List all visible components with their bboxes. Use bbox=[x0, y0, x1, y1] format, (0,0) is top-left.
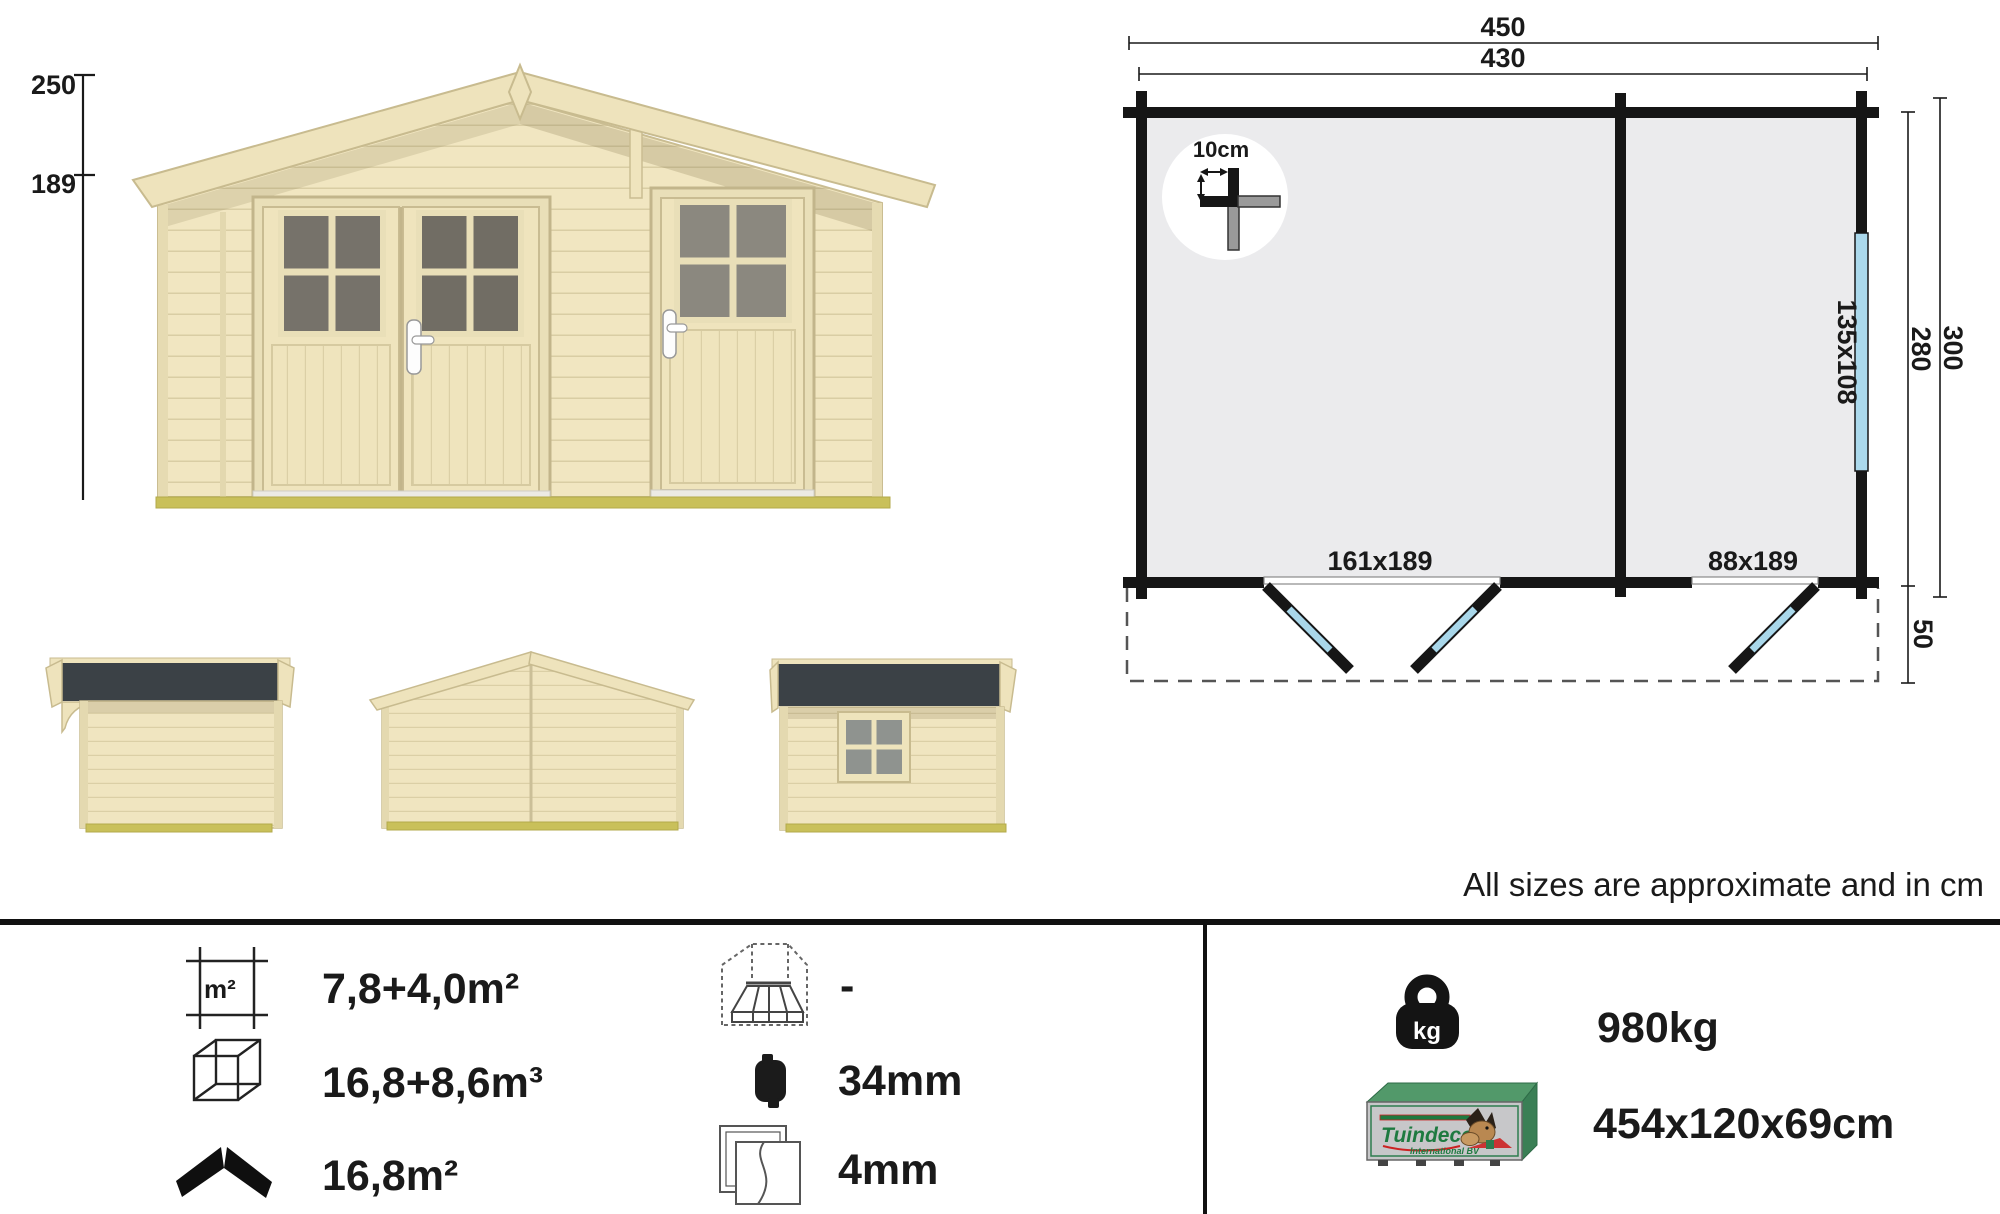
plan-door-swings bbox=[1266, 586, 1816, 670]
floor-area-icon-label: m² bbox=[204, 974, 236, 1004]
side-roof-right bbox=[777, 664, 1002, 706]
rear-view bbox=[370, 652, 694, 830]
spec-divider-line bbox=[1203, 925, 1207, 1214]
volume-cube-icon bbox=[194, 1040, 260, 1100]
brand-subtitle: International BV bbox=[1410, 1146, 1480, 1156]
roof-area-icon bbox=[176, 1147, 272, 1198]
single-door-window bbox=[677, 202, 789, 320]
spec-canopy: - bbox=[722, 944, 854, 1025]
log-detail: 10cm bbox=[1162, 134, 1288, 260]
spec-sheet-canvas: 250 189 bbox=[0, 0, 2000, 1214]
side-view-left bbox=[46, 658, 294, 832]
double-door bbox=[253, 197, 550, 500]
spec-sheet: 250 189 bbox=[0, 0, 2000, 1214]
height-dimension bbox=[74, 75, 95, 500]
plan-wall-width: 430 bbox=[1480, 43, 1525, 73]
roof-area-value: 16,8m² bbox=[322, 1152, 458, 1200]
plan-double-door-size: 161x189 bbox=[1327, 546, 1432, 576]
plan-single-door-size: 88x189 bbox=[1708, 546, 1798, 576]
package-size-value: 454x120x69cm bbox=[1593, 1100, 1894, 1148]
wall-height-label: 189 bbox=[31, 169, 76, 199]
plan-canopy-depth: 50 bbox=[1908, 619, 1938, 649]
weight-icon-label: kg bbox=[1413, 1018, 1441, 1045]
spec-floor-area: m² 7,8+4,0m² bbox=[186, 947, 519, 1029]
tuindeco-logo: Tuindeco International BV bbox=[1380, 1108, 1512, 1156]
package-box: Tuindeco International BV bbox=[1367, 1083, 1537, 1166]
plan-wall-depth: 280 bbox=[1906, 326, 1936, 371]
brand-name: Tuindeco bbox=[1381, 1124, 1474, 1147]
floor-area-value: 7,8+4,0m² bbox=[322, 965, 519, 1013]
plan-total-depth: 300 bbox=[1938, 325, 1968, 370]
foundation-beam bbox=[156, 497, 890, 508]
spec-glazing: 4mm bbox=[720, 1126, 938, 1204]
peak-height-label: 250 bbox=[31, 70, 76, 100]
door-window-right bbox=[419, 213, 521, 334]
floor-plan: 10cm 450 430 300 280 50 135x108 161x189 … bbox=[1123, 12, 1968, 683]
canopy-value: - bbox=[840, 962, 854, 1010]
spec-wall-thickness: 34mm bbox=[755, 1054, 962, 1108]
plan-window-size: 135x108 bbox=[1832, 299, 1862, 404]
canopy-icon bbox=[722, 944, 807, 1025]
plan-total-width: 450 bbox=[1480, 12, 1525, 42]
glass-pane-icon bbox=[720, 1126, 800, 1204]
front-elevation-view: 250 189 bbox=[31, 65, 935, 508]
single-door bbox=[651, 188, 814, 497]
door-window-left bbox=[281, 213, 383, 334]
log-detail-label: 10cm bbox=[1193, 137, 1249, 162]
weight-value: 980kg bbox=[1597, 1004, 1719, 1052]
sizes-note: All sizes are approximate and in cm bbox=[1463, 866, 1984, 903]
glazing-value: 4mm bbox=[838, 1146, 938, 1194]
spec-volume: 16,8+8,6m³ bbox=[194, 1040, 543, 1107]
weight-kettlebell-icon: kg bbox=[1396, 981, 1459, 1049]
spec-roof-area: 16,8m² bbox=[176, 1147, 458, 1200]
side-window bbox=[838, 712, 910, 782]
volume-value: 16,8+8,6m³ bbox=[322, 1059, 543, 1107]
spec-weight: kg 980kg bbox=[1396, 981, 1719, 1052]
wall-thickness-value: 34mm bbox=[838, 1057, 962, 1105]
side-view-right bbox=[770, 659, 1016, 832]
spec-separator-line bbox=[0, 919, 2000, 925]
spec-package: Tuindeco International BV 454x120x69cm bbox=[1367, 1083, 1894, 1166]
side-roof-left bbox=[60, 663, 280, 701]
log-profile-icon bbox=[755, 1054, 786, 1108]
cabin-front-drawing bbox=[133, 65, 935, 508]
